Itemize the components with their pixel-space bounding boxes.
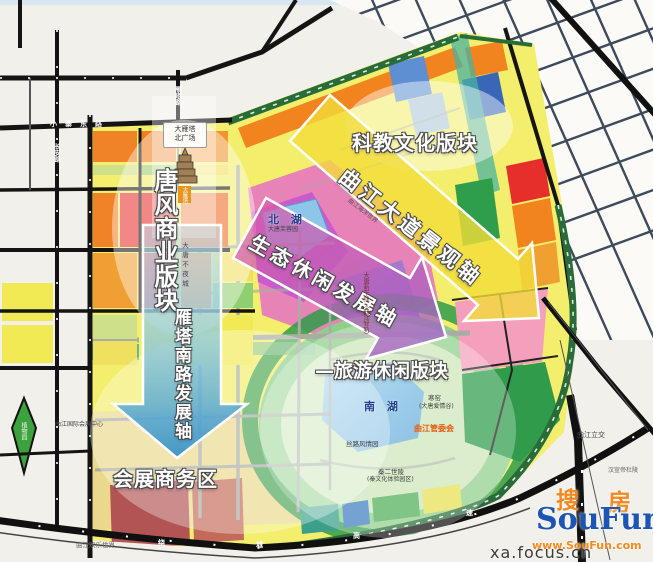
hanyao-label: 寒窑 <box>428 395 441 402</box>
ring-road-char: 绕 <box>158 540 165 547</box>
hanyao-sub-label: (大唐爱情谷) <box>419 404 454 410</box>
duling-label: 汉宣帝杜陵 <box>608 468 638 474</box>
planning-map: 唐风商业版块 雁塔南路发展轴 科教文化版块 曲江大道景观轴 生态休闲发展轴 —旅… <box>0 0 653 562</box>
happy-world-label: 曲江欢乐世界 <box>76 542 115 549</box>
ring-road-char: 速 <box>466 510 473 517</box>
north-lake-label: 北 湖 <box>268 214 306 225</box>
pagoda-tag-label: 大雁塔 <box>181 187 187 204</box>
light-rail-label: 大唐新干线（曲江轻轨） <box>362 272 368 338</box>
ring-road-char: 城 <box>256 542 263 549</box>
qin-tomb-label: 秦二世陵 <box>378 469 404 476</box>
convention-center-label: 曲江国际会展中心 <box>55 422 103 428</box>
yanta-road-label: 雁塔路 <box>174 86 181 106</box>
tourism-leisure-block-label: —旅游休闲版块 <box>315 362 448 381</box>
furong-garden-label: 大唐芙蓉园 <box>268 227 298 233</box>
yanta-south-axis-label: 雁塔南路发展轴 <box>172 308 189 441</box>
xiaozhai-road-label: 小寨东路 <box>50 121 110 128</box>
changan-road-label: 长安路 <box>53 143 60 163</box>
management-committee-label: 曲江管委会 <box>414 425 454 433</box>
soufun-brand: SouFun <box>536 505 653 535</box>
site-watermark: xa.focus.cn <box>490 545 592 561</box>
convention-business-label: 会展商务区 <box>113 469 218 489</box>
orange-parcel <box>512 198 556 248</box>
pagoda-square-line2: 北广场 <box>164 134 206 143</box>
keji-culture-block-label: 科教文化版块 <box>352 133 478 153</box>
ring-road-char: 高 <box>353 533 360 540</box>
buyecheng-label: 大唐不夜城 <box>181 242 188 290</box>
south-lake-label: 南 湖 <box>364 401 402 412</box>
tang-commercial-block-label: 唐风商业版块 <box>152 168 176 312</box>
botanical-garden-label: 植物园 <box>20 422 26 440</box>
qin-tomb-sub-label: (秦文化体验园区) <box>367 477 414 483</box>
interchange-label: 曲江立交 <box>577 432 605 439</box>
pagoda-square-box: 大雁塔 北广场 <box>163 122 207 148</box>
silk-road-park-label: 丝路风情园 <box>346 441 379 448</box>
red-parcel <box>506 158 550 204</box>
pagoda-square-line1: 大雁塔 <box>164 125 206 134</box>
